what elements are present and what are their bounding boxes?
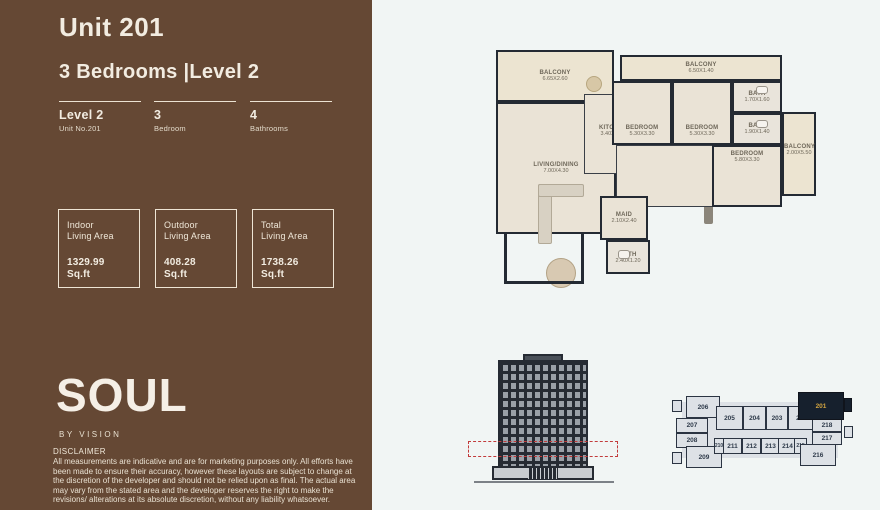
terrace-outline [504, 232, 584, 284]
room-label: BEDROOM 5.30X3.30 [674, 125, 730, 137]
spec-bathrooms-value: 4 [250, 108, 332, 122]
room-bedroom-1: BEDROOM 5.30X3.30 [612, 81, 672, 145]
room-dims: 5.80X3.30 [714, 157, 780, 163]
bath-fixture-icon [756, 86, 768, 94]
ground-line [474, 481, 614, 483]
disclaimer-text: All measurements are indicative and are … [53, 457, 365, 505]
room-dims: 5.30X3.30 [674, 131, 730, 137]
building-entrance [528, 468, 558, 479]
room-dims: 2.00X5.50 [784, 150, 814, 156]
outdoor-area-label: Outdoor Living Area [164, 220, 228, 242]
spec-bedrooms-label: Bedroom [154, 124, 236, 133]
sofa-icon [538, 184, 584, 197]
indoor-area-value: 1329.99 Sq.ft [67, 257, 131, 281]
room-dims: 1.70X1.60 [734, 97, 780, 103]
spec-level: Level 2 Unit No.201 [59, 101, 141, 133]
keyplan-unit-212: 212 [742, 438, 761, 454]
room-balcony-right: BALCONY 2.00X5.50 [782, 112, 816, 196]
room-balcony-top-right: BALCONY 6.50X1.40 [620, 55, 782, 81]
spec-bathrooms-label: Bathrooms [250, 124, 332, 133]
total-area-unit: Sq.ft [261, 269, 284, 280]
keyplan-balcony-stub [672, 452, 682, 464]
divider [59, 101, 141, 102]
disclaimer-title: DISCLAIMER [53, 447, 106, 456]
room-bath-2: BATH 1.90X1.40 [732, 113, 782, 145]
room-dims: 1.90X1.40 [734, 129, 780, 135]
indoor-area-label-line2: Living Area [67, 231, 114, 241]
indoor-area-label-line1: Indoor [67, 220, 94, 230]
keyplan-unit-201-stub [844, 398, 852, 412]
keyplan-balcony-stub [672, 400, 682, 412]
room-dims: 2.10X2.40 [602, 218, 646, 224]
room-label: BALCONY 2.00X5.50 [784, 144, 814, 156]
level-2-highlight-box [468, 441, 618, 457]
keyplan-balcony-stub [844, 426, 853, 438]
room-bedroom-2: BEDROOM 5.30X3.30 [672, 81, 732, 145]
keyplan-unit-217: 217 [812, 432, 842, 445]
indoor-area-label: Indoor Living Area [67, 220, 131, 242]
keyplan-unit-203: 203 [766, 406, 788, 430]
spec-bathrooms: 4 Bathrooms [250, 101, 332, 133]
outdoor-area-label-line1: Outdoor [164, 220, 198, 230]
bath-fixture-icon [618, 250, 630, 259]
total-area-label: Total Living Area [261, 220, 325, 242]
bath-fixture-icon [756, 120, 768, 128]
page-subtitle: 3 Bedrooms |Level 2 [59, 61, 259, 84]
indoor-area-unit: Sq.ft [67, 269, 90, 280]
indoor-area-number: 1329.99 [67, 257, 105, 268]
room-bedroom-3: BEDROOM 5.80X3.30 [712, 145, 782, 207]
total-area-number: 1738.26 [261, 257, 299, 268]
outdoor-area-card: Outdoor Living Area 408.28 Sq.ft [155, 209, 237, 288]
keyplan-unit-207: 207 [676, 418, 708, 433]
total-area-value: 1738.26 Sq.ft [261, 257, 325, 281]
indoor-area-card: Indoor Living Area 1329.99 Sq.ft [58, 209, 140, 288]
room-label: BALCONY 6.50X1.40 [622, 62, 780, 74]
room-label: MAID 2.10X2.40 [602, 212, 646, 224]
outdoor-area-unit: Sq.ft [164, 269, 187, 280]
total-area-card: Total Living Area 1738.26 Sq.ft [252, 209, 334, 288]
outdoor-area-number: 408.28 [164, 257, 196, 268]
divider [154, 101, 236, 102]
brand-logo: SOUL [56, 368, 188, 422]
keyplan-unit-205: 205 [716, 406, 743, 430]
keyplan-unit-216: 216 [800, 444, 836, 466]
keyplan-unit-206: 206 [686, 396, 720, 418]
brochure-page: Unit 201 3 Bedrooms |Level 2 Level 2 Uni… [0, 0, 880, 510]
spec-bedrooms-value: 3 [154, 108, 236, 122]
divider [250, 101, 332, 102]
room-dims: 6.50X1.40 [622, 68, 780, 74]
total-area-label-line2: Living Area [261, 231, 308, 241]
room-label: BEDROOM 5.30X3.30 [614, 125, 670, 137]
keyplan-unit-218: 218 [812, 418, 842, 432]
spec-bedrooms: 3 Bedroom [154, 101, 236, 133]
brand-tagline: BY VISION [59, 430, 121, 439]
keyplan-unit-204: 204 [743, 406, 766, 430]
sidebar: Unit 201 3 Bedrooms |Level 2 Level 2 Uni… [0, 0, 372, 510]
spec-level-label: Unit No.201 [59, 124, 141, 133]
outdoor-area-label-line2: Living Area [164, 231, 211, 241]
page-title: Unit 201 [59, 12, 164, 43]
keyplan-unit-201-highlighted: 201 [798, 392, 844, 420]
room-dims: 5.30X3.30 [614, 131, 670, 137]
room-maid: MAID 2.10X2.40 [600, 196, 648, 240]
outdoor-area-value: 408.28 Sq.ft [164, 257, 228, 281]
building-elevation [478, 354, 608, 486]
room-dims: 2.40X1.20 [608, 258, 648, 264]
key-plan: 206 205 204 203 202 207 208 209 210 211 … [668, 386, 864, 482]
total-area-label-line1: Total [261, 220, 281, 230]
balcony-table-icon [586, 76, 602, 92]
floor-plan: BALCONY 6.65X2.60 BALCONY 6.50X1.40 LIVI… [468, 38, 838, 298]
keyplan-unit-211: 211 [723, 438, 742, 454]
spec-level-value: Level 2 [59, 108, 141, 122]
room-label: BEDROOM 5.80X3.30 [714, 151, 780, 163]
